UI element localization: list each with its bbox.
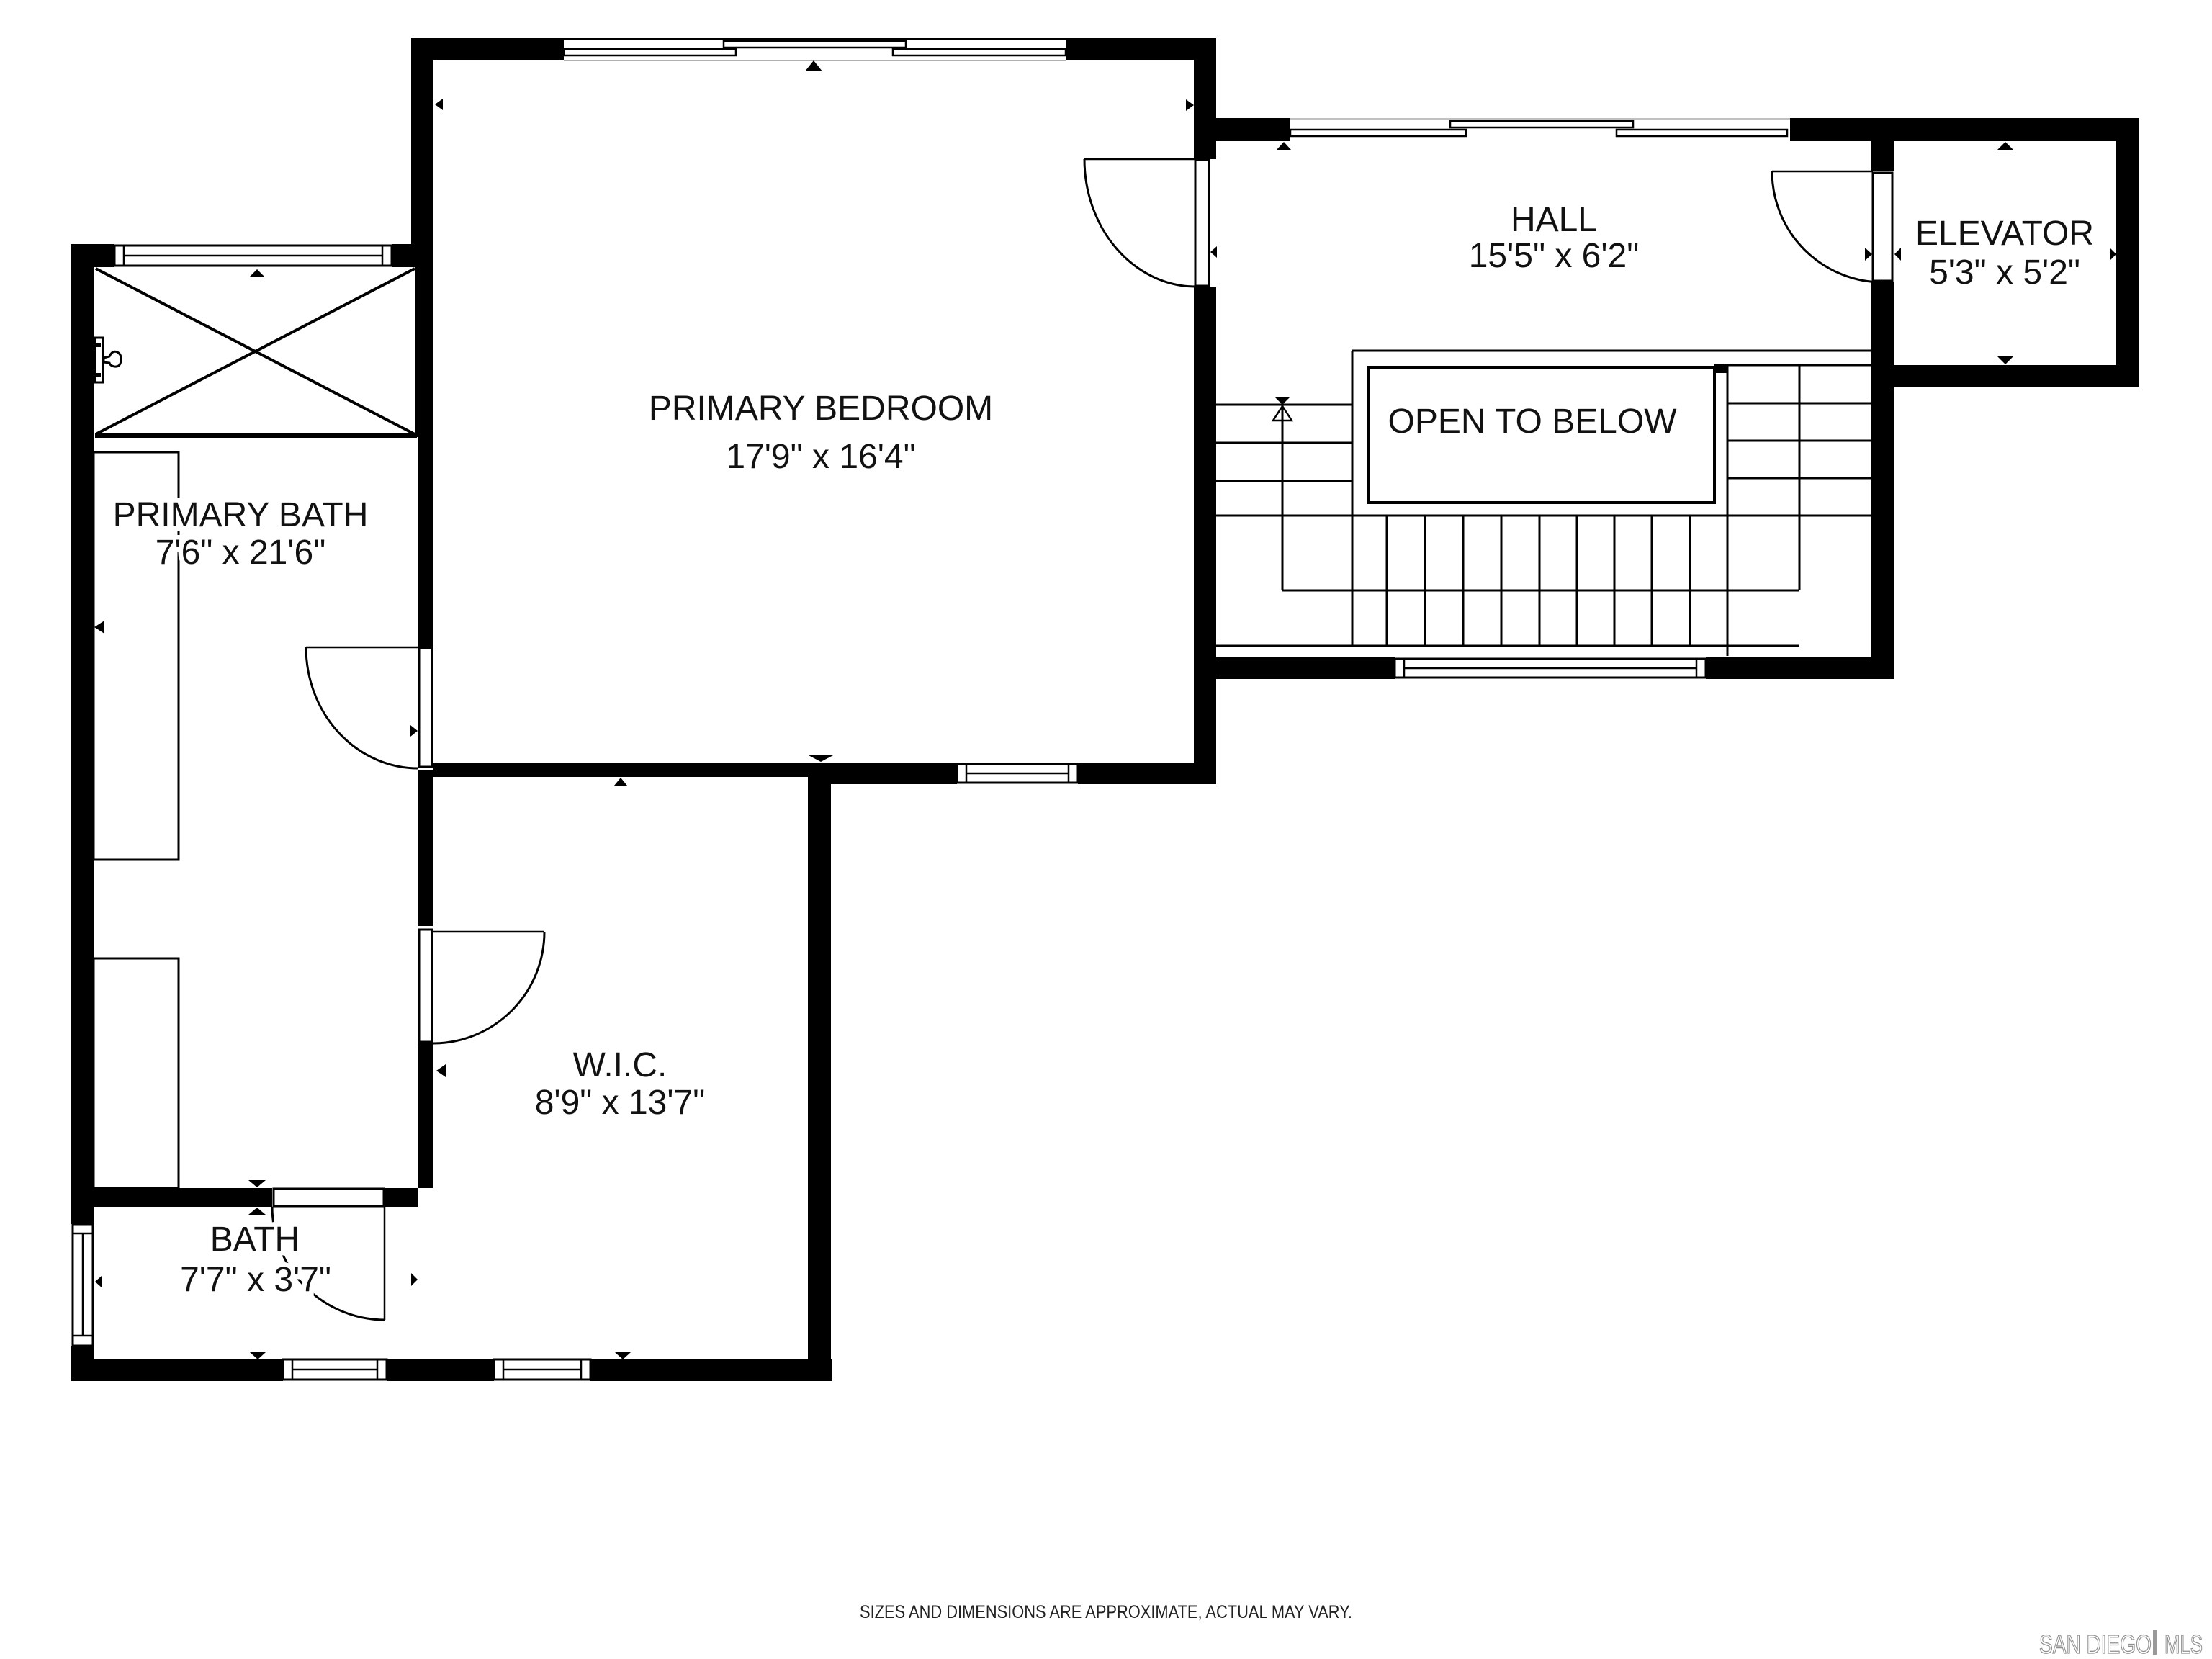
svg-text:SAN DIEGO: SAN DIEGO (2039, 1629, 2152, 1659)
svg-text:7'6" x 21'6": 7'6" x 21'6" (156, 534, 326, 572)
svg-text:PRIMARY BATH: PRIMARY BATH (113, 496, 369, 534)
svg-text:MLS: MLS (2164, 1629, 2203, 1659)
svg-text:BATH: BATH (210, 1220, 300, 1259)
svg-text:15'5" x 6'2": 15'5" x 6'2" (1469, 237, 1640, 275)
svg-text:8'9" x 13'7": 8'9" x 13'7" (535, 1084, 706, 1122)
svg-text:7'7" x 3'7": 7'7" x 3'7" (180, 1261, 331, 1299)
svg-text:OPEN TO BELOW: OPEN TO BELOW (1388, 403, 1678, 441)
svg-text:W.I.C.: W.I.C. (573, 1046, 667, 1084)
svg-text:17'9" x 16'4": 17'9" x 16'4" (726, 438, 915, 476)
svg-text:PRIMARY BEDROOM: PRIMARY BEDROOM (649, 390, 993, 428)
svg-text:HALL: HALL (1511, 201, 1597, 239)
svg-text:5'3" x 5'2": 5'3" x 5'2" (1929, 253, 2080, 292)
svg-text:SIZES AND DIMENSIONS ARE APPRO: SIZES AND DIMENSIONS ARE APPROXIMATE, AC… (860, 1602, 1352, 1622)
svg-text:ELEVATOR: ELEVATOR (1915, 215, 2094, 253)
